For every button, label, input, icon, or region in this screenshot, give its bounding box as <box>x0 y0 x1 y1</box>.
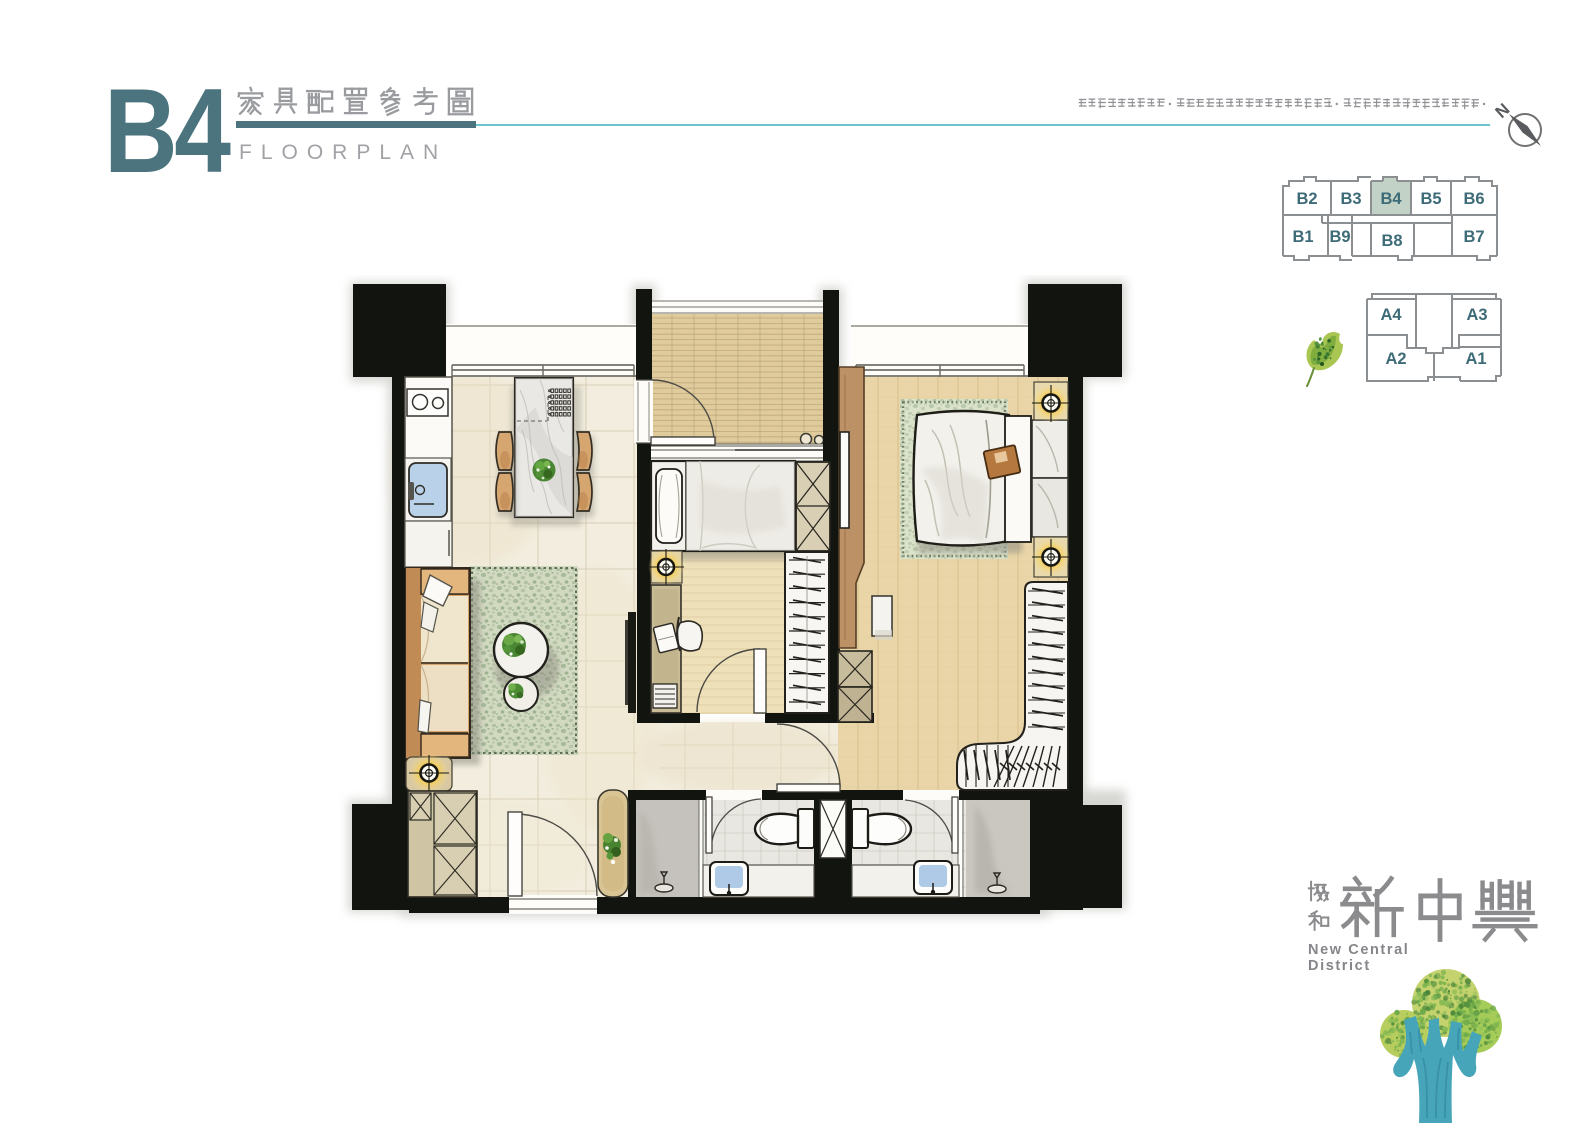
svg-text:B4: B4 <box>1380 190 1402 208</box>
svg-text:B5: B5 <box>1420 190 1441 208</box>
svg-text:B3: B3 <box>1340 190 1361 208</box>
svg-text:B2: B2 <box>1296 190 1317 208</box>
svg-text:A4: A4 <box>1380 306 1402 324</box>
svg-text:A1: A1 <box>1465 350 1486 368</box>
svg-text:N: N <box>1492 100 1514 122</box>
svg-text:B8: B8 <box>1381 232 1402 250</box>
svg-text:A2: A2 <box>1385 350 1406 368</box>
svg-text:B7: B7 <box>1463 228 1484 246</box>
svg-text:A3: A3 <box>1466 306 1487 324</box>
svg-text:B1: B1 <box>1292 228 1313 246</box>
svg-text:B9: B9 <box>1329 228 1350 246</box>
svg-text:B6: B6 <box>1463 190 1484 208</box>
